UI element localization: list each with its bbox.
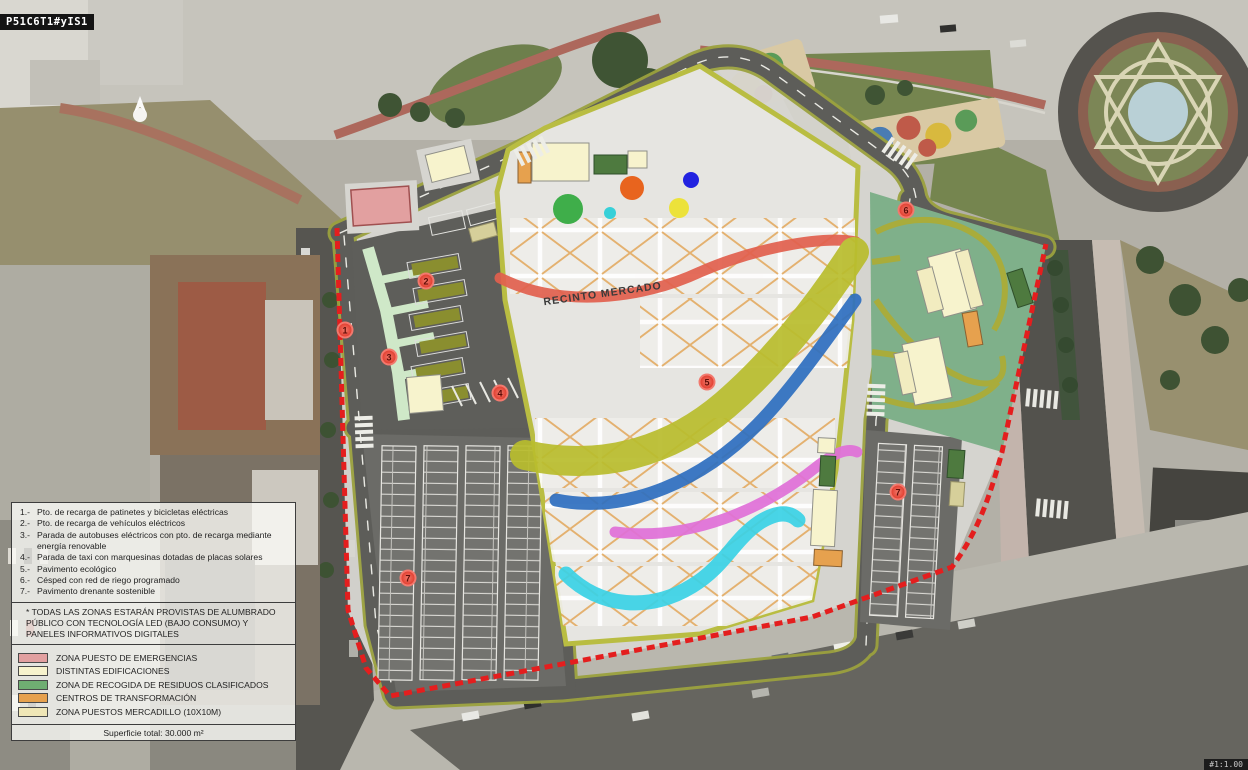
legend-color-emergencias: Zona puesto de emergencias (18, 653, 289, 663)
legend-total-area: Superficie total: 30.000 m² (12, 725, 295, 740)
swatch-residuos (18, 680, 48, 690)
parking-southwest (362, 434, 566, 692)
plan-marker-7-east: 7 (890, 484, 907, 501)
plan-marker-4: 4 (492, 385, 509, 402)
plan-marker-3: 3 (381, 349, 398, 366)
swatch-emergencias (18, 653, 48, 663)
legend-color-list: Zona puesto de emergencias Distintas edi… (12, 645, 295, 725)
swatch-edificaciones (18, 666, 48, 676)
plan-marker-1: 1 (337, 322, 354, 339)
aerial-site-plan: P51C6T1#yIS1 #1:1.00 RECINTO MERCADO 1 2… (0, 0, 1248, 770)
legend-item-7: 7.-Pavimento drenante sostenible (20, 586, 289, 597)
legend-note: * Todas las zonas estarán provistas de a… (12, 603, 295, 646)
scale-watermark: #1:1.00 (1204, 759, 1248, 770)
pond (1128, 82, 1188, 142)
plan-marker-6: 6 (898, 202, 915, 219)
parking-east (860, 430, 965, 630)
legend-item-6: 6.-Césped con red de riego programado (20, 575, 289, 586)
legend-numbered-list: 1.-Pto. de recarga de patinetes y bicicl… (12, 503, 295, 603)
plan-marker-5: 5 (699, 374, 716, 391)
legend-color-edificaciones: Distintas edificaciones (18, 666, 289, 676)
market-plaza (497, 66, 858, 644)
plan-marker-2: 2 (418, 273, 435, 290)
legend-color-residuos: Zona de recogida de residuos clasificado… (18, 680, 289, 690)
swatch-mercadillo (18, 707, 48, 717)
legend-panel: 1.-Pto. de recarga de patinetes y bicicl… (11, 502, 296, 741)
legend-color-mercadillo: Zona puestos mercadillo (10x10m) (18, 707, 289, 717)
legend-color-transformacion: Centros de transformación (18, 693, 289, 703)
legend-item-4: 4.-Parada de taxi con marquesinas dotada… (20, 552, 289, 563)
sheet-code-watermark: P51C6T1#yIS1 (0, 14, 94, 30)
legend-item-1: 1.-Pto. de recarga de patinetes y bicicl… (20, 507, 289, 518)
legend-item-3: 3.-Parada de autobuses eléctricos con pt… (20, 530, 289, 553)
legend-item-2: 2.-Pto. de recarga de vehículos eléctric… (20, 518, 289, 529)
legend-item-5: 5.-Pavimento ecológico (20, 564, 289, 575)
swatch-transformacion (18, 693, 48, 703)
plan-marker-7-west: 7 (400, 570, 417, 587)
